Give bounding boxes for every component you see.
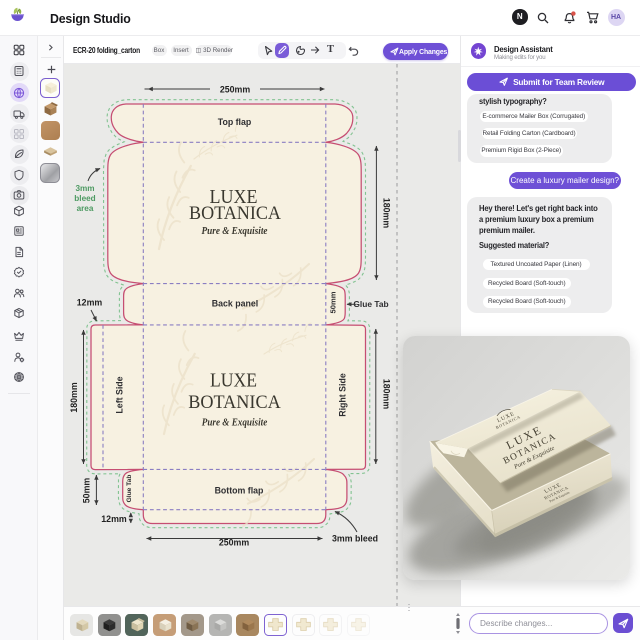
svg-text:BOTANICA: BOTANICA xyxy=(188,393,281,413)
svg-text:Bottom flap: Bottom flap xyxy=(215,486,264,496)
svg-text:Glue Tab: Glue Tab xyxy=(353,299,388,309)
svg-text:Back panel: Back panel xyxy=(212,299,258,309)
svg-text:250mm: 250mm xyxy=(220,85,250,95)
svg-text:180mm: 180mm xyxy=(382,379,392,409)
svg-text:Right Side: Right Side xyxy=(338,373,348,417)
svg-text:LUXE: LUXE xyxy=(210,370,257,392)
svg-text:bleed: bleed xyxy=(74,194,95,203)
svg-text:180mm: 180mm xyxy=(69,382,79,412)
svg-text:BOTANICA: BOTANICA xyxy=(189,204,282,224)
svg-text:250mm: 250mm xyxy=(219,538,249,548)
svg-text:Pure & Exquisite: Pure & Exquisite xyxy=(202,225,268,237)
svg-text:3mm bleed: 3mm bleed xyxy=(332,534,378,544)
svg-text:50mm: 50mm xyxy=(329,291,338,313)
svg-text:Top flap: Top flap xyxy=(218,117,252,127)
svg-text:180mm: 180mm xyxy=(382,198,392,228)
svg-text:Left Side: Left Side xyxy=(115,376,125,413)
svg-text:50mm: 50mm xyxy=(82,478,92,504)
svg-text:area: area xyxy=(77,204,94,213)
svg-text:12mm: 12mm xyxy=(77,298,103,308)
svg-text:3mm: 3mm xyxy=(75,184,94,193)
svg-text:Glue Tab: Glue Tab xyxy=(126,475,133,503)
svg-text:12mm: 12mm xyxy=(101,514,127,524)
svg-text:Pure & Exquisite: Pure & Exquisite xyxy=(202,416,268,428)
